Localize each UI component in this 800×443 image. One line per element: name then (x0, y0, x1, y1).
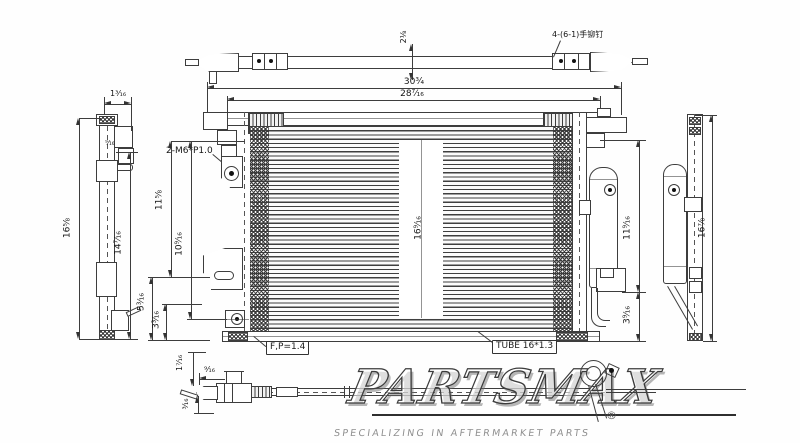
dim-line (191, 141, 192, 319)
line (276, 53, 277, 70)
extension-line (148, 277, 210, 278)
arrowhead (195, 396, 199, 403)
dim-pipe-b: ⁹⁄₁₆ (204, 366, 215, 374)
dim-line (171, 141, 172, 277)
arrowhead (409, 44, 413, 51)
extension-line (621, 82, 622, 115)
drier-bracket-tab (600, 268, 614, 278)
extension-line (194, 413, 214, 414)
extension-line (171, 141, 245, 142)
top-view-left-hook (185, 59, 199, 66)
top-view-bar (236, 56, 592, 69)
lower-mount-bracket (203, 248, 243, 290)
top-view-right-mount-block (552, 53, 590, 70)
dim-core-height: 16⁹⁄₁₆ (415, 216, 424, 240)
extension-line (79, 339, 101, 340)
watermark-tagline: SPECIALIZING IN AFTERMARKET PARTS (333, 428, 591, 439)
extension-line (104, 97, 105, 114)
top-right-tab (597, 108, 611, 117)
extension-line (148, 340, 210, 341)
hatch-block (228, 332, 248, 341)
extension-line (622, 292, 646, 293)
arrowhead (709, 115, 713, 122)
top-left-bracket (203, 112, 228, 130)
rivet-dot (269, 59, 273, 63)
dim-foot-a: 5³⁄₁₆ (138, 293, 147, 311)
arrowhead (163, 333, 167, 340)
rivet-note: 4-(6-1)手铆钉 (552, 31, 603, 39)
arrowhead (124, 101, 131, 105)
drier-clamp (579, 200, 591, 215)
dim-line (712, 115, 713, 341)
dim-left-stud: ⁹⁄₁₆ (105, 140, 115, 147)
dim-core-width: 28⁷⁄₁₆ (400, 90, 424, 99)
bolt-center (229, 171, 234, 176)
arrowhead (104, 101, 111, 105)
rivet-dot (257, 59, 261, 63)
pipe-sleeve (250, 386, 272, 398)
dim-right-height: 16⅞ (699, 218, 708, 238)
arrowhead (190, 379, 194, 386)
line (232, 383, 233, 403)
arrowhead (76, 118, 80, 125)
condenser-technical-drawing: 2⅛ 4-(6-1)手铆钉 30¾ 28⁷⁄₁₆ 1³⁄₁₆ ⁹⁄₁₆ 16⅝ … (0, 0, 800, 443)
thread-note: 2-M6*P1.0 (166, 147, 213, 156)
dim-line (639, 140, 640, 292)
dim-left-span: 14⁷⁄₁₆ (115, 231, 124, 255)
dim-mount-upper: 11⅝ (156, 190, 165, 210)
extension-line (162, 304, 202, 305)
dim-line (227, 100, 600, 101)
dim-pipe-a: 1⁷⁄₁₆ (176, 355, 184, 371)
left-view-mid-block (96, 262, 117, 297)
left-view-centerline (107, 117, 108, 339)
hatch-block (99, 116, 115, 124)
arrowhead (636, 285, 640, 292)
arrowhead (127, 332, 131, 339)
core-side-plate (250, 126, 269, 332)
dim-left-height: 16⅝ (64, 218, 73, 238)
pipe-outline (606, 389, 746, 390)
extension-line (112, 339, 138, 340)
left-view-bracket (118, 148, 134, 164)
arrowhead (636, 292, 640, 299)
dim-drier-span: 11⁹⁄₁₆ (624, 216, 633, 240)
dim-top-depth: 2⅛ (400, 31, 408, 44)
pipe-end-port (586, 366, 601, 381)
left-view-stud-bracket (96, 160, 118, 182)
dim-left-top: 1³⁄₁₆ (110, 90, 126, 98)
extension-line (703, 341, 717, 342)
arrowhead (163, 304, 167, 311)
arrowhead (207, 85, 214, 89)
extension-line (131, 97, 132, 131)
bolt-center (608, 188, 612, 192)
outlet-pipe-elbow (597, 288, 610, 321)
arrowhead (614, 85, 621, 89)
dim-mount-lower: 10⁹⁄₁₆ (176, 232, 185, 256)
dim-overall-width: 30¾ (404, 78, 424, 87)
line (224, 371, 244, 372)
fitting-nose (196, 386, 218, 400)
arrowhead (188, 141, 192, 148)
arrowhead (199, 376, 206, 380)
line (589, 179, 618, 180)
top-view-right-end (590, 52, 634, 72)
line (264, 53, 265, 70)
dim-line (130, 152, 131, 339)
arrowhead (188, 312, 192, 319)
header-centerline (579, 112, 580, 341)
extension-line (79, 118, 101, 119)
arrowhead (227, 97, 234, 101)
hatch-block (689, 127, 701, 135)
arrowhead (149, 277, 153, 284)
arrowhead (709, 334, 713, 341)
pipe-sleeve (276, 387, 298, 397)
extension-line (116, 152, 138, 153)
arrowhead (168, 270, 172, 277)
extension-line (600, 341, 646, 342)
fin-pitch-note: F,P=1.4 (266, 341, 309, 355)
tube-note: TUBE 16*1.3 (492, 340, 557, 354)
line (578, 53, 579, 70)
core-side-plate (553, 126, 572, 332)
rivet-dot (572, 59, 576, 63)
extension-line (188, 352, 206, 353)
registered-mark: ® (606, 409, 617, 422)
top-left-bracket (217, 130, 237, 145)
dim-foot-b: 3³⁄₁₆ (153, 311, 162, 329)
dim-pipe-c: ³⁄₁₆ (182, 399, 190, 410)
bracket-block (689, 281, 702, 293)
line (222, 336, 600, 337)
bolt-center (672, 188, 676, 192)
right-view-centerline (694, 114, 695, 341)
fitting-stub (226, 371, 242, 384)
top-view-right-hook (632, 58, 648, 65)
line (564, 53, 565, 70)
top-view-left-tab (209, 71, 217, 84)
arrowhead (636, 140, 640, 147)
line (663, 176, 687, 177)
fitting-bolt-center (609, 368, 614, 373)
top-right-arm (583, 117, 627, 133)
arrowhead (149, 333, 153, 340)
top-view-left-end (197, 53, 239, 72)
extension-line (187, 319, 227, 320)
dim-line (79, 118, 80, 339)
drier-clamp (684, 197, 702, 212)
pipe-outline (606, 392, 656, 393)
arrowhead (168, 141, 172, 148)
arrowhead (593, 97, 600, 101)
arrowhead (636, 334, 640, 341)
bracket-slot (214, 271, 234, 280)
dim-drier-foot: 3⁹⁄₁₆ (624, 306, 633, 324)
pipe-fitting (216, 383, 252, 403)
line (224, 383, 225, 403)
dim-line (152, 277, 153, 340)
header-centerline (244, 112, 245, 340)
rivet-dot (559, 59, 563, 63)
arrowhead (76, 332, 80, 339)
extension-line (695, 115, 717, 116)
bracket-block (689, 267, 702, 279)
hatch-block (689, 333, 702, 341)
line (663, 266, 687, 267)
hatch-block (556, 332, 588, 341)
hatch-block (689, 117, 701, 125)
pipe-joint-mark (344, 386, 345, 398)
arrowhead (127, 152, 131, 159)
